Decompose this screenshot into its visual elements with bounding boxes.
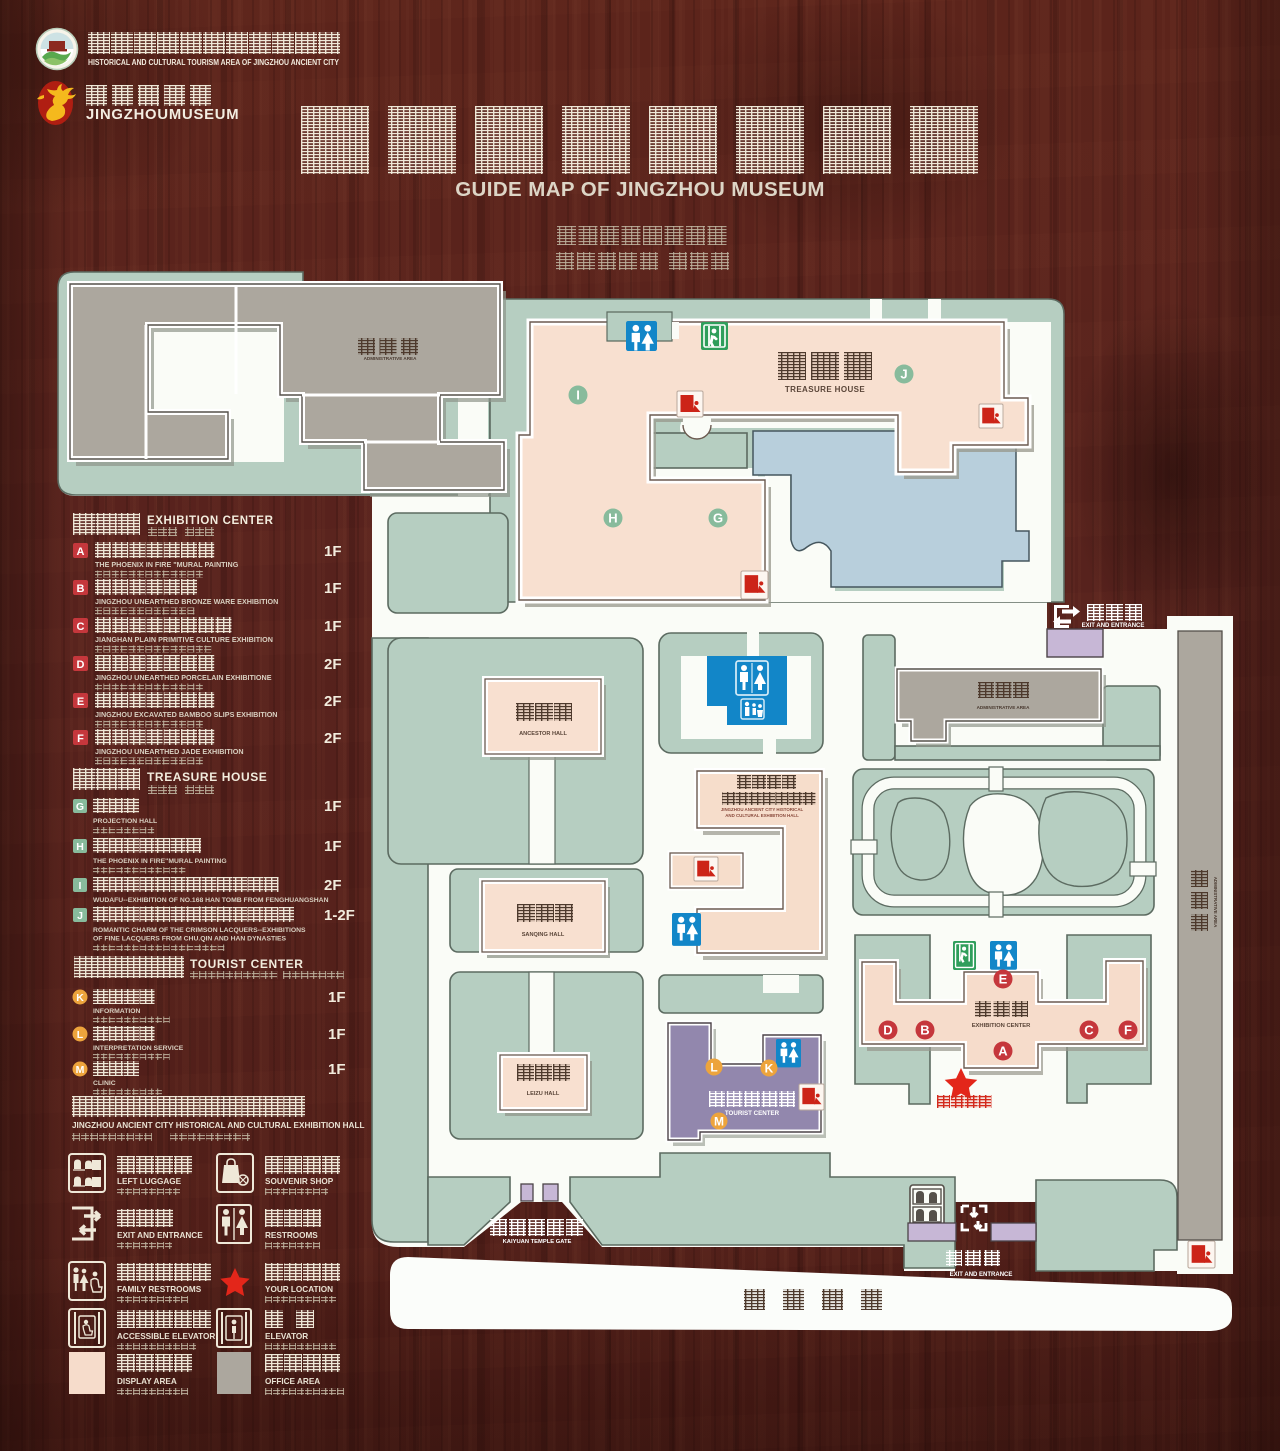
svg-text:GUIDE MAP OF JINGZHOU MUSEUM: GUIDE MAP OF JINGZHOU MUSEUM bbox=[455, 178, 825, 201]
svg-text:1F: 1F bbox=[324, 838, 342, 855]
svg-text:2F: 2F bbox=[324, 877, 342, 894]
svg-text:EXIT AND ENTRANCE: EXIT AND ENTRANCE bbox=[950, 1272, 1013, 1278]
svg-text:1F: 1F bbox=[328, 1026, 346, 1043]
svg-text:1F: 1F bbox=[324, 543, 342, 560]
svg-text:DISPLAY AREA: DISPLAY AREA bbox=[117, 1377, 177, 1386]
svg-text:JINGZHOU UNEARTHED JADE EXHIBI: JINGZHOU UNEARTHED JADE EXHIBITION bbox=[95, 747, 244, 756]
svg-text:F: F bbox=[77, 733, 84, 745]
svg-text:1-2F: 1-2F bbox=[324, 907, 355, 924]
svg-text:JINGZHOU ANCIENT CITY HISTORIC: JINGZHOU ANCIENT CITY HISTORICAL bbox=[721, 807, 804, 812]
svg-text:CLINIC: CLINIC bbox=[93, 1080, 116, 1087]
svg-text:AND CULTURAL EXHIBITION HALL: AND CULTURAL EXHIBITION HALL bbox=[725, 813, 799, 818]
svg-text:EXHIBITION CENTER: EXHIBITION CENTER bbox=[147, 515, 274, 527]
svg-text:LEFT LUGGAGE: LEFT LUGGAGE bbox=[117, 1177, 182, 1186]
svg-text:M: M bbox=[76, 1064, 85, 1076]
svg-text:HISTORICAL AND CULTURAL TOURIS: HISTORICAL AND CULTURAL TOURISM AREA OF … bbox=[88, 57, 339, 67]
svg-text:PROJECTION HALL: PROJECTION HALL bbox=[93, 818, 157, 825]
svg-text:JINGZHOU EXCAVATED BAMBOO SLIP: JINGZHOU EXCAVATED BAMBOO SLIPS EXHIBITI… bbox=[95, 710, 278, 719]
svg-text:2F: 2F bbox=[324, 730, 342, 747]
svg-text:2F: 2F bbox=[324, 656, 342, 673]
svg-text:ADMINISTRATIVE AREA: ADMINISTRATIVE AREA bbox=[1213, 877, 1218, 928]
svg-text:ANCESTOR HALL: ANCESTOR HALL bbox=[519, 731, 567, 737]
svg-text:G: G bbox=[713, 511, 723, 526]
svg-text:1F: 1F bbox=[324, 618, 342, 635]
svg-text:ELEVATOR: ELEVATOR bbox=[265, 1332, 308, 1341]
svg-text:TREASURE HOUSE: TREASURE HOUSE bbox=[785, 385, 866, 394]
svg-text:C: C bbox=[1084, 1023, 1094, 1038]
svg-text:EXHIBITION CENTER: EXHIBITION CENTER bbox=[972, 1023, 1031, 1029]
svg-text:B: B bbox=[77, 583, 85, 595]
svg-text:THE PHOENIX IN FIRE "MURAL PAI: THE PHOENIX IN FIRE "MURAL PAINTING bbox=[95, 560, 239, 569]
svg-text:I: I bbox=[79, 880, 82, 892]
svg-text:OFFICE AREA: OFFICE AREA bbox=[265, 1377, 320, 1386]
svg-text:THE PHOENIX IN FIRE"MURAL PAIN: THE PHOENIX IN FIRE"MURAL PAINTING bbox=[93, 858, 227, 865]
svg-text:E: E bbox=[77, 696, 84, 708]
svg-text:RESTROOMS: RESTROOMS bbox=[265, 1231, 318, 1240]
svg-text:KAIYUAN TEMPLE GATE: KAIYUAN TEMPLE GATE bbox=[503, 1239, 572, 1245]
svg-text:1F: 1F bbox=[324, 580, 342, 597]
svg-text:L: L bbox=[710, 1060, 717, 1074]
svg-text:M: M bbox=[714, 1114, 724, 1128]
svg-text:J: J bbox=[77, 910, 83, 922]
svg-text:G: G bbox=[76, 801, 84, 813]
svg-text:H: H bbox=[76, 841, 84, 853]
svg-text:ADMINISTRATIVE AREA: ADMINISTRATIVE AREA bbox=[977, 705, 1031, 710]
svg-text:D: D bbox=[77, 659, 85, 671]
svg-text:SANQING HALL: SANQING HALL bbox=[522, 932, 565, 938]
svg-text:L: L bbox=[77, 1029, 84, 1041]
svg-text:1F: 1F bbox=[324, 798, 342, 815]
svg-text:YOUR LOCATION: YOUR LOCATION bbox=[265, 1285, 333, 1294]
svg-text:WUDAFU--EXHIBITION OF NO.168 H: WUDAFU--EXHIBITION OF NO.168 HAN TOMB FR… bbox=[93, 897, 329, 904]
svg-text:LEIZU HALL: LEIZU HALL bbox=[527, 1091, 560, 1097]
svg-text:K: K bbox=[765, 1061, 774, 1075]
svg-text:I: I bbox=[576, 388, 580, 403]
svg-text:1F: 1F bbox=[328, 1061, 346, 1078]
svg-text:B: B bbox=[920, 1023, 929, 1038]
svg-text:A: A bbox=[77, 546, 85, 558]
svg-text:JINGZHOUMUSEUM: JINGZHOUMUSEUM bbox=[86, 107, 239, 123]
svg-text:F: F bbox=[1124, 1023, 1132, 1038]
svg-text:ADMINISTRATIVE AREA: ADMINISTRATIVE AREA bbox=[364, 356, 418, 361]
svg-text:H: H bbox=[608, 511, 617, 526]
svg-text:A: A bbox=[998, 1044, 1008, 1059]
svg-text:EXIT AND ENTRANCE: EXIT AND ENTRANCE bbox=[1082, 623, 1145, 629]
svg-text:INFORMATION: INFORMATION bbox=[93, 1008, 141, 1015]
svg-text:1F: 1F bbox=[328, 989, 346, 1006]
svg-text:C: C bbox=[77, 621, 85, 633]
svg-text:E: E bbox=[999, 972, 1008, 987]
svg-text:JIANGHAN PLAIN PRIMITIVE CULTU: JIANGHAN PLAIN PRIMITIVE CULTURE EXHIBIT… bbox=[95, 635, 273, 644]
svg-text:JINGZHOU UNEARTHED BRONZE WARE: JINGZHOU UNEARTHED BRONZE WARE EXHIBITIO… bbox=[95, 597, 278, 606]
svg-text:J: J bbox=[900, 367, 907, 382]
svg-text:JINGZHOU ANCIENT CITY HISTORIC: JINGZHOU ANCIENT CITY HISTORICAL AND CUL… bbox=[72, 1121, 364, 1130]
svg-text:D: D bbox=[883, 1023, 892, 1038]
svg-text:ACCESSIBLE ELEVATOR: ACCESSIBLE ELEVATOR bbox=[117, 1332, 215, 1341]
svg-text:FAMILY RESTROOMS: FAMILY RESTROOMS bbox=[117, 1285, 202, 1294]
svg-text:TOURIST CENTER: TOURIST CENTER bbox=[190, 957, 304, 971]
svg-text:ROMANTIC CHARM OF THE CRIMSON: ROMANTIC CHARM OF THE CRIMSON LACQUERS--… bbox=[93, 927, 306, 934]
svg-text:TREASURE HOUSE: TREASURE HOUSE bbox=[147, 770, 267, 784]
svg-text:JINGZHOU UNEARTHED PORCELAIN E: JINGZHOU UNEARTHED PORCELAIN EXHIBITIONE bbox=[95, 673, 272, 682]
svg-text:TOURIST CENTER: TOURIST CENTER bbox=[725, 1110, 780, 1117]
svg-text:2F: 2F bbox=[324, 693, 342, 710]
svg-text:EXIT AND ENTRANCE: EXIT AND ENTRANCE bbox=[117, 1231, 203, 1240]
svg-text:OF FINE LACQUERS FROM CHU.QIN: OF FINE LACQUERS FROM CHU.QIN AND HAN DY… bbox=[93, 936, 287, 943]
svg-text:K: K bbox=[76, 992, 84, 1004]
svg-text:INTERPRETATION SERVICE: INTERPRETATION SERVICE bbox=[93, 1045, 184, 1052]
svg-text:SOUVENIR SHOP: SOUVENIR SHOP bbox=[265, 1177, 334, 1186]
